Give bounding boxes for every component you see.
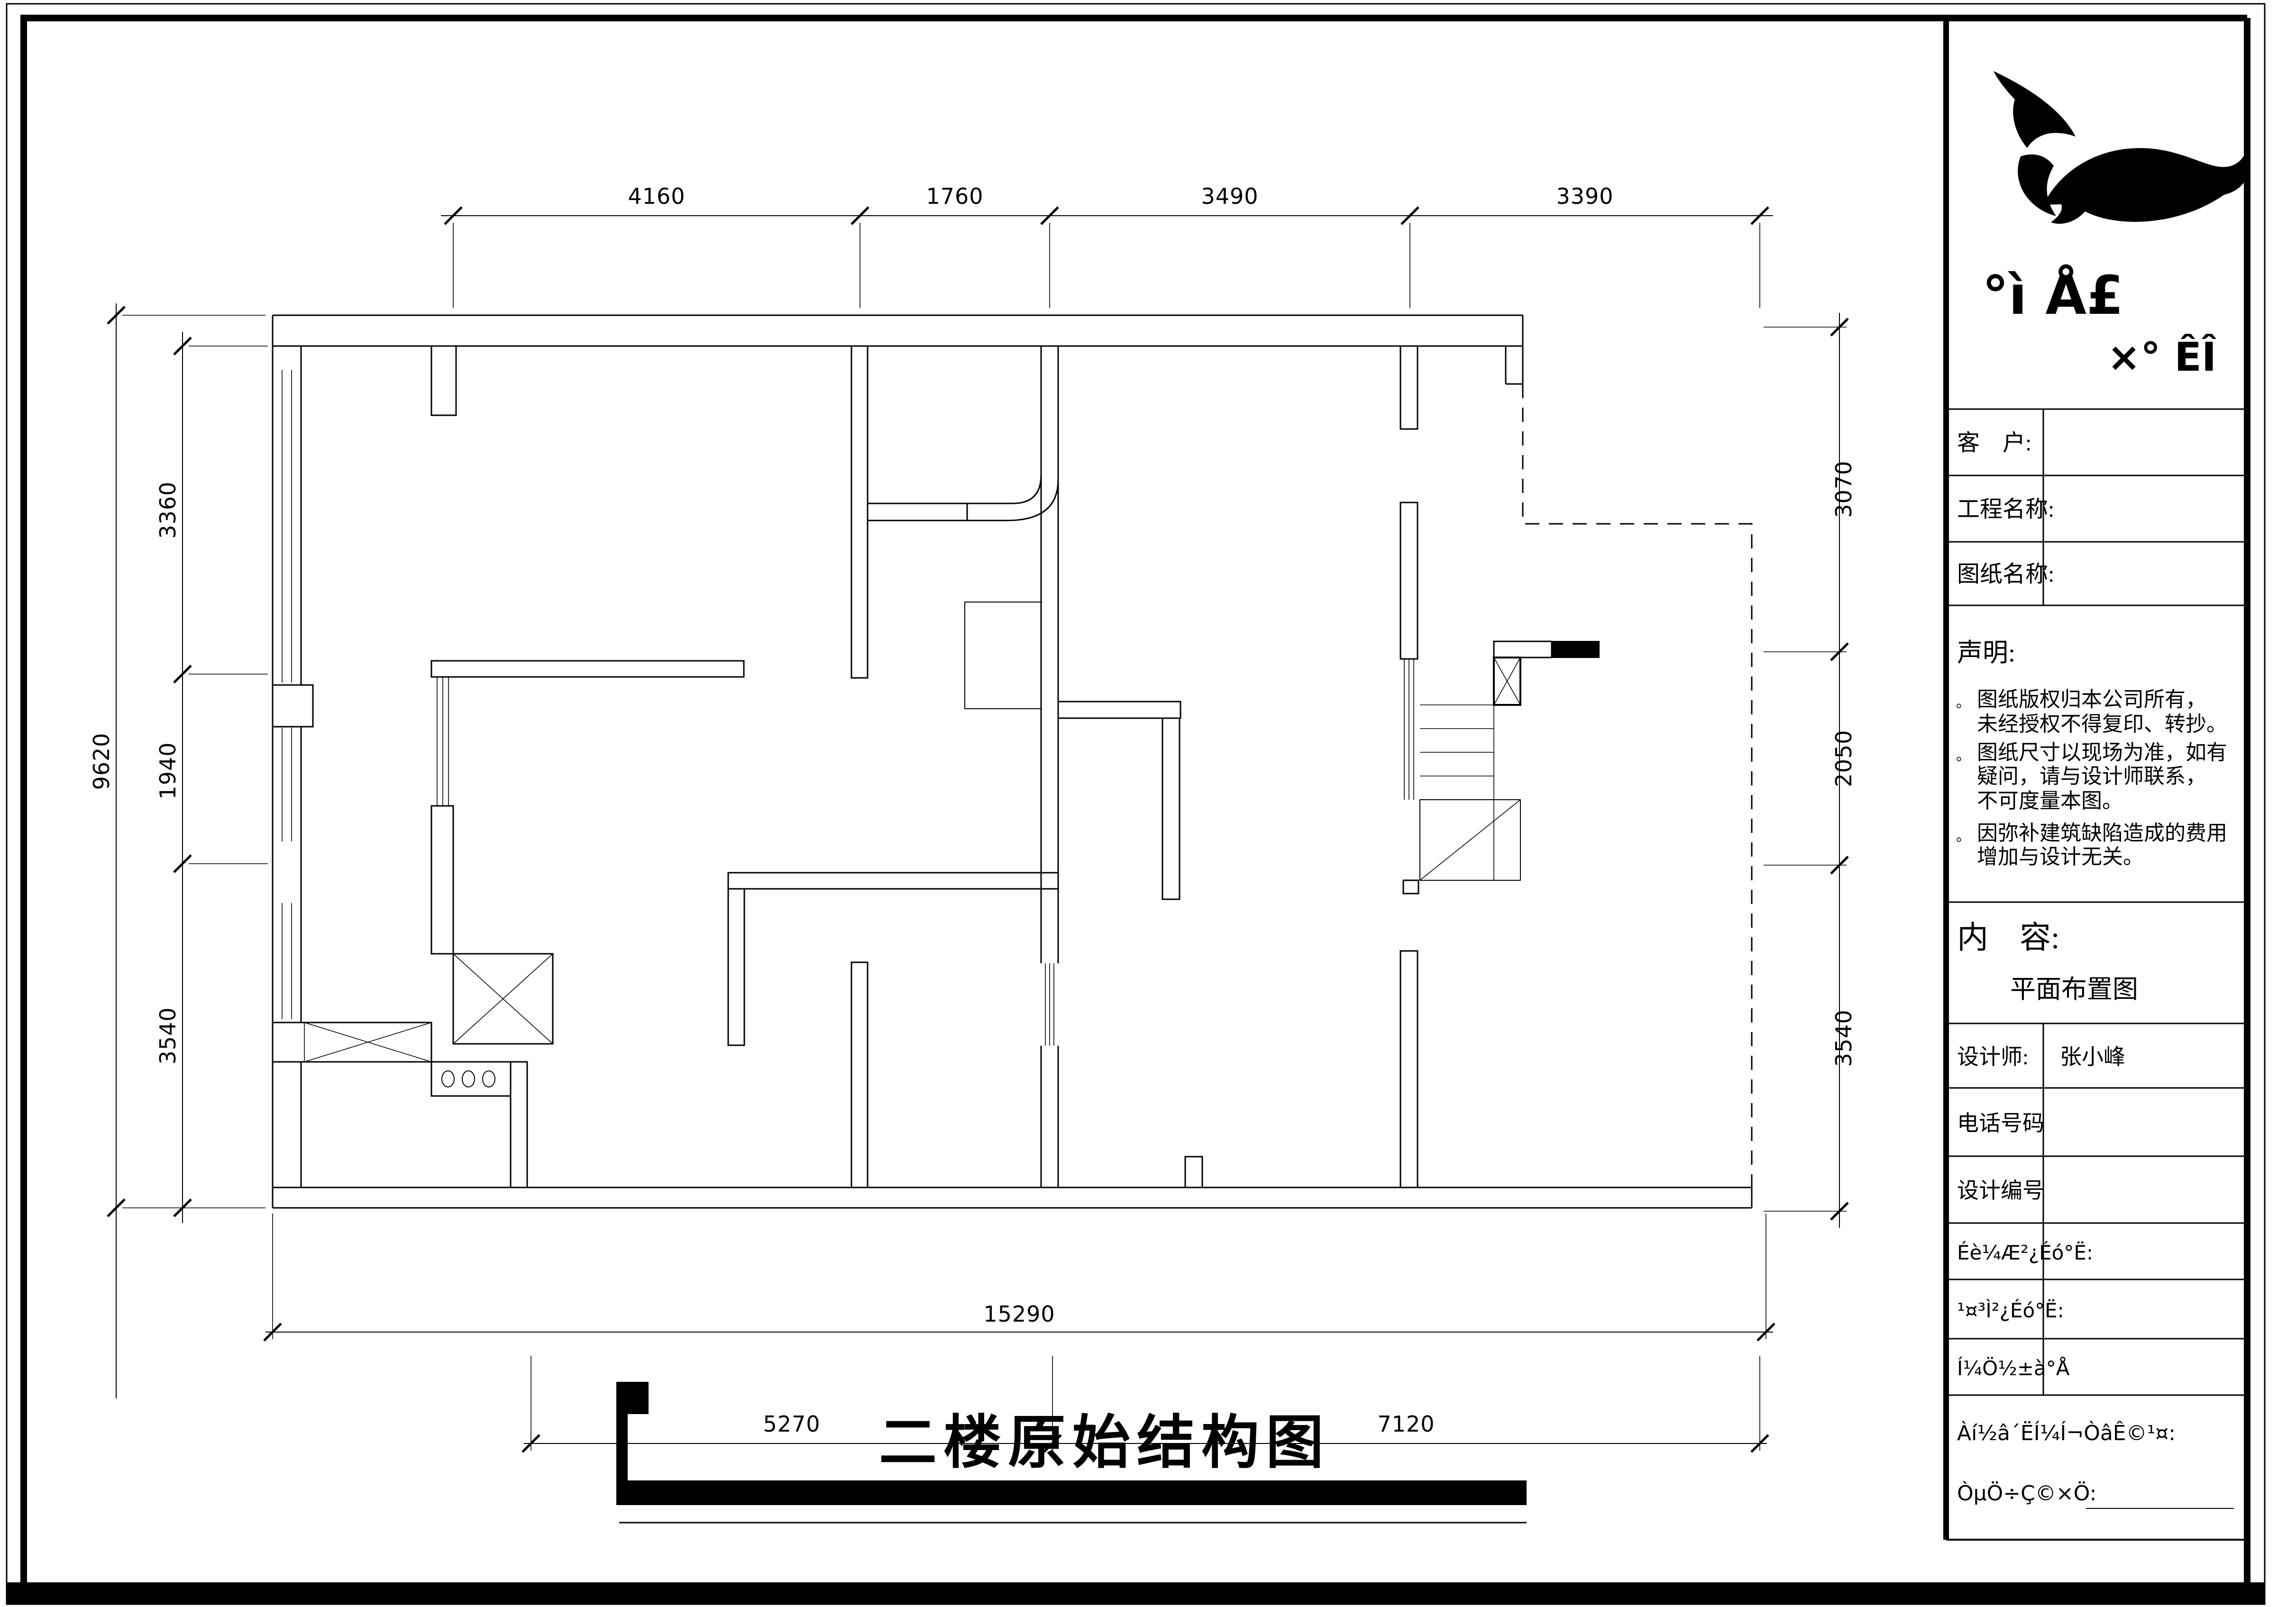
bullet-3: 。: [1956, 829, 1970, 844]
kitchen-fixtures: [273, 954, 553, 1187]
company-logo: °ì Å£ ×° ÊÎ: [1982, 71, 2250, 380]
logo-text-line2: ×° ÊÎ: [2107, 334, 2217, 380]
dim-top-4: 3390: [1556, 183, 1613, 209]
review1-label: Éè¼Æ²¿Éó°Ë:: [1957, 1241, 2093, 1264]
plan-title: 二楼原始结构图: [879, 1409, 1330, 1476]
interior-walls: [431, 346, 1418, 1187]
stair-beam-black: [1552, 641, 1599, 657]
bullet-1: 。: [1956, 695, 1970, 711]
dim-bottom-outer-value: 15290: [983, 1301, 1055, 1327]
agree-label: Àí½â´ËÍ¼Í¬ÒâÊ©¹¤:: [1957, 1420, 2176, 1445]
duct-x-icon: [273, 1023, 431, 1062]
dim-top-1: 4160: [628, 183, 685, 209]
dim-right-chain: 3070 2050 3540: [1764, 313, 1857, 1228]
stair-shaft-x-icon: [1494, 657, 1520, 705]
title-underline-bar: [616, 1480, 1527, 1505]
bottom-border-bar: [7, 1582, 2265, 1604]
statement-heading: 声明:: [1957, 639, 2015, 667]
dim-bottom-1: 5270: [763, 1411, 820, 1437]
logo-text-line1: °ì Å£: [1982, 264, 2123, 327]
dim-left-outer: 9620: [89, 303, 265, 1398]
statement-line-7: 增加与设计无关。: [1977, 845, 2144, 868]
review2-label: ¹¤³Ì²¿Éó°Ë:: [1957, 1298, 2064, 1322]
statement-line-6: 因弥补建筑缺陷造成的费用: [1977, 822, 2227, 845]
dim-right-3: 3540: [1831, 1009, 1857, 1067]
filleted-wall-corner: [868, 475, 1041, 503]
left-wall-pier: [273, 685, 313, 727]
dim-left-outer-value: 9620: [89, 732, 114, 790]
sheet-no-label: Í¼Ö½±à°Å: [1957, 1356, 2070, 1380]
sign-label: ÒµÖ÷Ç©×Ö:: [1957, 1480, 2096, 1506]
shaft-x-icon: [453, 954, 553, 1044]
dim-bottom-2: 7120: [1377, 1411, 1435, 1437]
page-border: [7, 4, 2265, 1604]
project-name-label: 工程名称:: [1957, 497, 2054, 522]
dim-left-3: 3540: [155, 1007, 181, 1064]
drawing-name-label: 图纸名称:: [1957, 562, 2054, 587]
drawing-sheet: 4160 1760 3490 3390 9620 3360 1940 3540: [0, 0, 2296, 1607]
stair-treads: [1420, 705, 1494, 800]
title-block: °ì Å£ ×° ÊÎ 客 户: 工程名称: 图纸名称: 声明: 。: [1946, 18, 2250, 1540]
staircase: [1403, 641, 1599, 894]
top-wall-pier: [431, 346, 456, 415]
statement-line-2: 未经授权不得复印、转抄。: [1977, 712, 2227, 736]
statement-line-4: 疑问，请与设计师联系，: [1977, 765, 2206, 788]
plan-title-block: 二楼原始结构图: [616, 1382, 1527, 1523]
floor-plan: [273, 315, 1752, 1208]
title-bracket-square: [616, 1382, 649, 1414]
designer-label: 设计师:: [1957, 1045, 2029, 1069]
stair-beam-white: [1494, 641, 1552, 657]
dim-right-2: 2050: [1831, 730, 1857, 787]
statement-line-5: 不可度量本图。: [1977, 789, 2123, 813]
dim-right-1: 3070: [1831, 460, 1857, 518]
bullet-2: 。: [1956, 748, 1970, 764]
dashed-boundary: [1523, 384, 1752, 1187]
closet-outline: [965, 602, 1041, 709]
dim-top-2: 1760: [926, 183, 983, 209]
customer-label: 客 户:: [1957, 430, 2031, 456]
left-window-glazing: [273, 370, 313, 1019]
floor-plan-canvas: 4160 1760 3490 3390 9620 3360 1940 3540: [0, 0, 2296, 1607]
dim-left-chain: 3360 1940 3540: [155, 332, 268, 1223]
dimensions: 4160 1760 3490 3390 9620 3360 1940 3540: [89, 183, 1857, 1452]
phone-label: 电话号码: [1957, 1111, 2044, 1135]
content-value: 平面布置图: [2010, 975, 2138, 1004]
dim-left-1: 3360: [155, 481, 181, 539]
content-heading: 内 容:: [1957, 921, 2059, 955]
dim-top-chain: 4160 1760 3490 3390: [441, 183, 1773, 308]
statement-line-3: 图纸尺寸以现场为准，如有: [1977, 741, 2227, 764]
statement-section: 声明: 。 。 。 图纸版权归本公司所有， 未经授权不得复印、转抄。 图纸尺寸以…: [1956, 639, 2227, 868]
statement-line-1: 图纸版权归本公司所有，: [1977, 688, 2206, 711]
title-bracket-bar: [616, 1414, 628, 1480]
logo-swoosh-icon: [1994, 71, 2250, 224]
dim-bottom-outer: 15290: [264, 1214, 1775, 1341]
design-no-label: 设计编号: [1957, 1178, 2044, 1203]
designer-value: 张小峰: [2060, 1045, 2125, 1069]
dim-top-3: 3490: [1201, 183, 1258, 209]
stair-landing: [1420, 800, 1520, 880]
dim-left-2: 1940: [155, 742, 181, 799]
cooktop-icon: [431, 1062, 511, 1096]
